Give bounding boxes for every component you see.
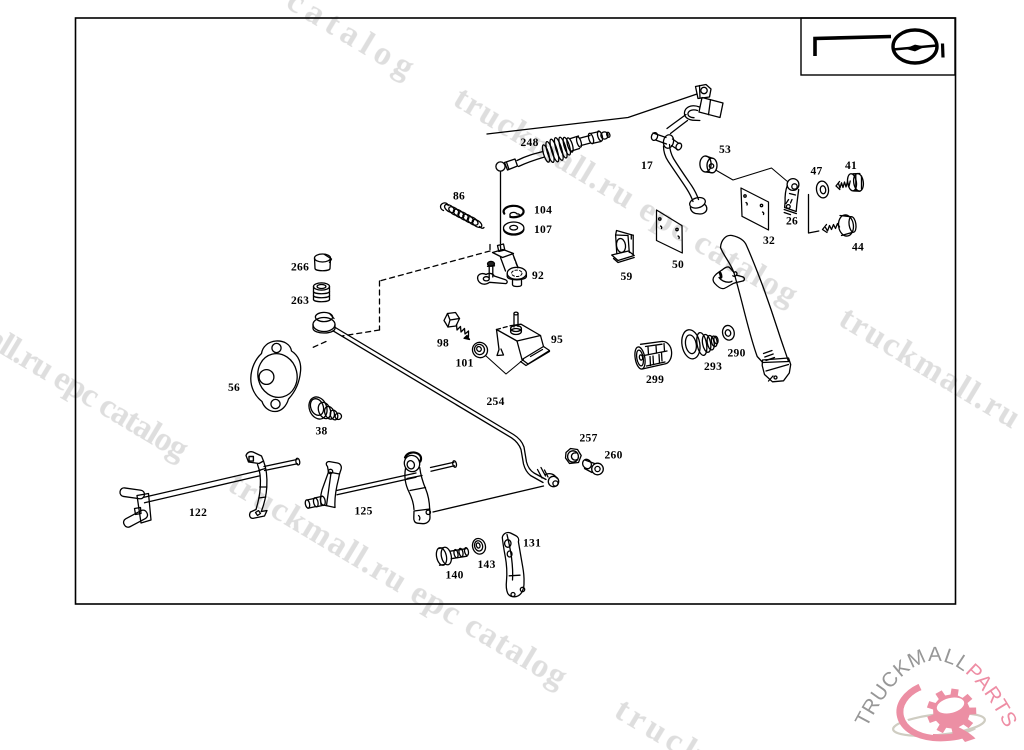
svg-text:101: 101 xyxy=(456,358,474,370)
svg-text:41: 41 xyxy=(845,160,857,172)
svg-text:299: 299 xyxy=(646,374,664,386)
svg-text:290: 290 xyxy=(728,348,746,360)
svg-text:47: 47 xyxy=(811,166,823,178)
svg-text:266: 266 xyxy=(291,262,309,274)
svg-text:86: 86 xyxy=(453,191,465,203)
svg-text:17: 17 xyxy=(641,160,653,172)
svg-text:140: 140 xyxy=(446,570,464,582)
svg-text:50: 50 xyxy=(672,259,684,271)
svg-text:131: 131 xyxy=(523,538,541,550)
svg-text:257: 257 xyxy=(580,433,598,445)
svg-text:53: 53 xyxy=(719,144,731,156)
svg-text:260: 260 xyxy=(605,450,623,462)
svg-text:38: 38 xyxy=(316,426,328,438)
svg-text:293: 293 xyxy=(704,361,722,373)
svg-text:248: 248 xyxy=(521,137,539,149)
svg-text:263: 263 xyxy=(291,295,309,307)
svg-text:122: 122 xyxy=(189,507,207,519)
svg-text:92: 92 xyxy=(532,270,544,282)
svg-text:143: 143 xyxy=(478,559,496,571)
svg-text:32: 32 xyxy=(763,235,775,247)
svg-text:95: 95 xyxy=(551,334,563,346)
svg-text:107: 107 xyxy=(534,224,552,236)
svg-text:44: 44 xyxy=(852,242,864,254)
svg-text:125: 125 xyxy=(355,506,373,518)
svg-text:56: 56 xyxy=(228,382,240,394)
svg-text:104: 104 xyxy=(534,205,552,217)
svg-text:59: 59 xyxy=(621,271,633,283)
svg-text:254: 254 xyxy=(487,396,505,408)
svg-text:98: 98 xyxy=(437,338,449,350)
svg-text:26: 26 xyxy=(786,216,798,228)
